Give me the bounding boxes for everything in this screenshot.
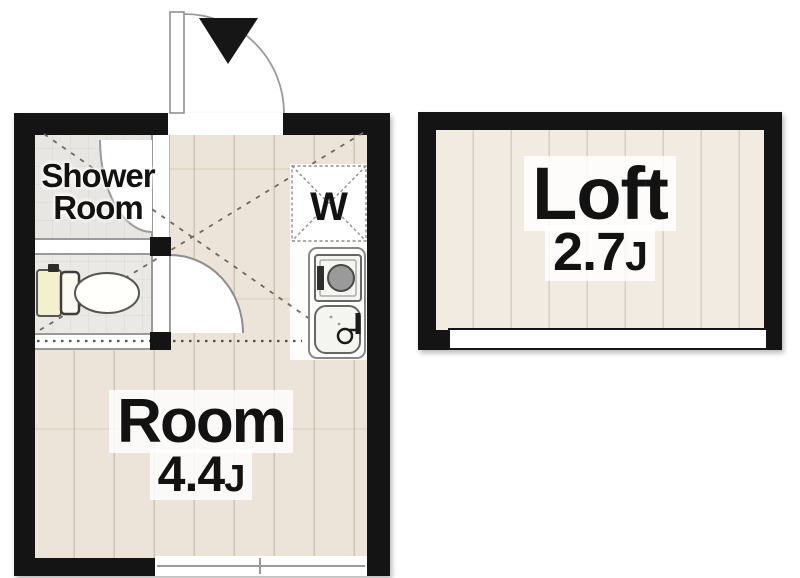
loft-opening-railing: [448, 328, 768, 350]
wall-post-upper: [150, 237, 171, 256]
room-size-unit: J: [224, 458, 244, 500]
room-size-value: 4.4: [158, 446, 225, 502]
loft-label-block: Loft 2.7J: [436, 156, 764, 281]
entrance-arrow-icon: [199, 18, 258, 64]
loft-size: 2.7J: [545, 225, 655, 280]
wall-post-lower: [150, 332, 171, 350]
shower-toilet-partition-wall: [35, 238, 151, 255]
room-label-block: Room 4.4J: [35, 390, 367, 500]
entrance-door-swing-icon: [170, 12, 284, 113]
loft-label: Loft: [524, 156, 676, 231]
loft-size-value: 2.7: [553, 222, 625, 282]
window-icon: [155, 556, 367, 576]
entrance-opening: [168, 113, 283, 135]
washer-label: W: [292, 185, 366, 230]
toilet-lower-partition-wall: [35, 333, 151, 350]
floorplan-canvas: Shower Room W Room 4.4J Loft 2.7J: [0, 0, 800, 578]
loft-size-unit: J: [625, 233, 647, 279]
room-size: 4.4J: [150, 449, 253, 500]
shower-room-label: Shower Room: [28, 160, 168, 223]
toilet-room-floor: [35, 255, 151, 333]
room-label: Room: [109, 390, 293, 453]
